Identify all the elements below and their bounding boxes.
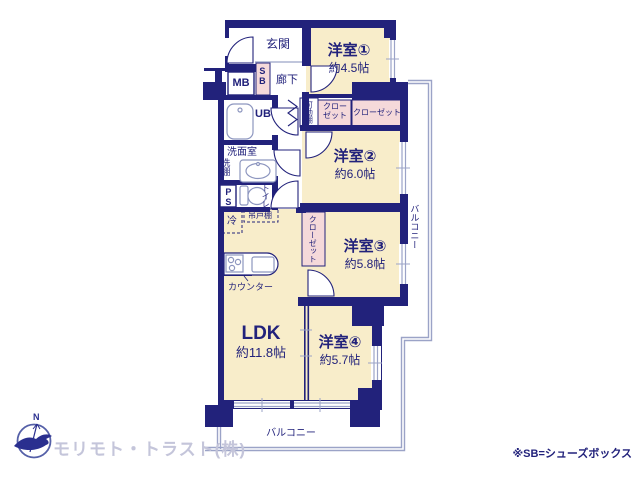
washroom-label: 洗面室 (227, 147, 257, 159)
western3-size: 約5.8帖 (334, 258, 396, 272)
counter-label: カウンター (228, 282, 273, 292)
western2-size: 約6.0帖 (324, 168, 386, 182)
company-name: モリモト・トラスト(株) (53, 440, 246, 460)
movable-shelf-label: 可動棚 (304, 101, 313, 127)
floor-plan: 玄関 MB SB 廊下 UB 洗面室 洗棚 PS トイレ 冷 吊戸棚 カウンター… (0, 0, 640, 480)
ldk-size: 約11.8帖 (226, 346, 296, 361)
sb-note: ※SB=シューズボックス (497, 448, 632, 461)
sink-icon (252, 257, 274, 272)
logo-n-letter: N (33, 412, 40, 422)
western2-name: 洋室② (324, 148, 386, 165)
entrance-label: 玄関 (253, 38, 303, 52)
closet-c-label: クローゼット (308, 215, 317, 265)
western4-size: 約5.7帖 (308, 354, 372, 368)
western4-name: 洋室④ (308, 334, 372, 351)
sb-label: SB (257, 66, 267, 94)
closet-b-label: クローゼット (353, 108, 401, 117)
toilet-label: トイレ (261, 184, 270, 210)
corridor-label: 廊下 (272, 74, 302, 87)
ldk-name: LDK (226, 323, 296, 345)
balcony-bottom-label: バルコニー (263, 428, 319, 440)
entrance-door-arc (227, 37, 253, 63)
hanging-cupboard-label: 吊戸棚 (248, 211, 272, 220)
fridge-label: 冷 (227, 216, 237, 228)
closet-a-label: クローゼット (320, 102, 350, 120)
company-logo-icon (14, 424, 52, 458)
balcony-right-label: バルコニー (409, 204, 419, 254)
ub-label: UB (252, 108, 274, 121)
western1-name: 洋室① (318, 42, 380, 59)
western3-name: 洋室③ (334, 238, 396, 255)
toilet-icon (240, 186, 248, 205)
western1-size: 約4.5帖 (318, 62, 380, 76)
laundry-shelf-label: 洗棚 (220, 158, 230, 184)
ps-label: PS (223, 187, 233, 207)
washroom-door-arc (274, 150, 300, 176)
mb-label: MB (228, 77, 254, 90)
